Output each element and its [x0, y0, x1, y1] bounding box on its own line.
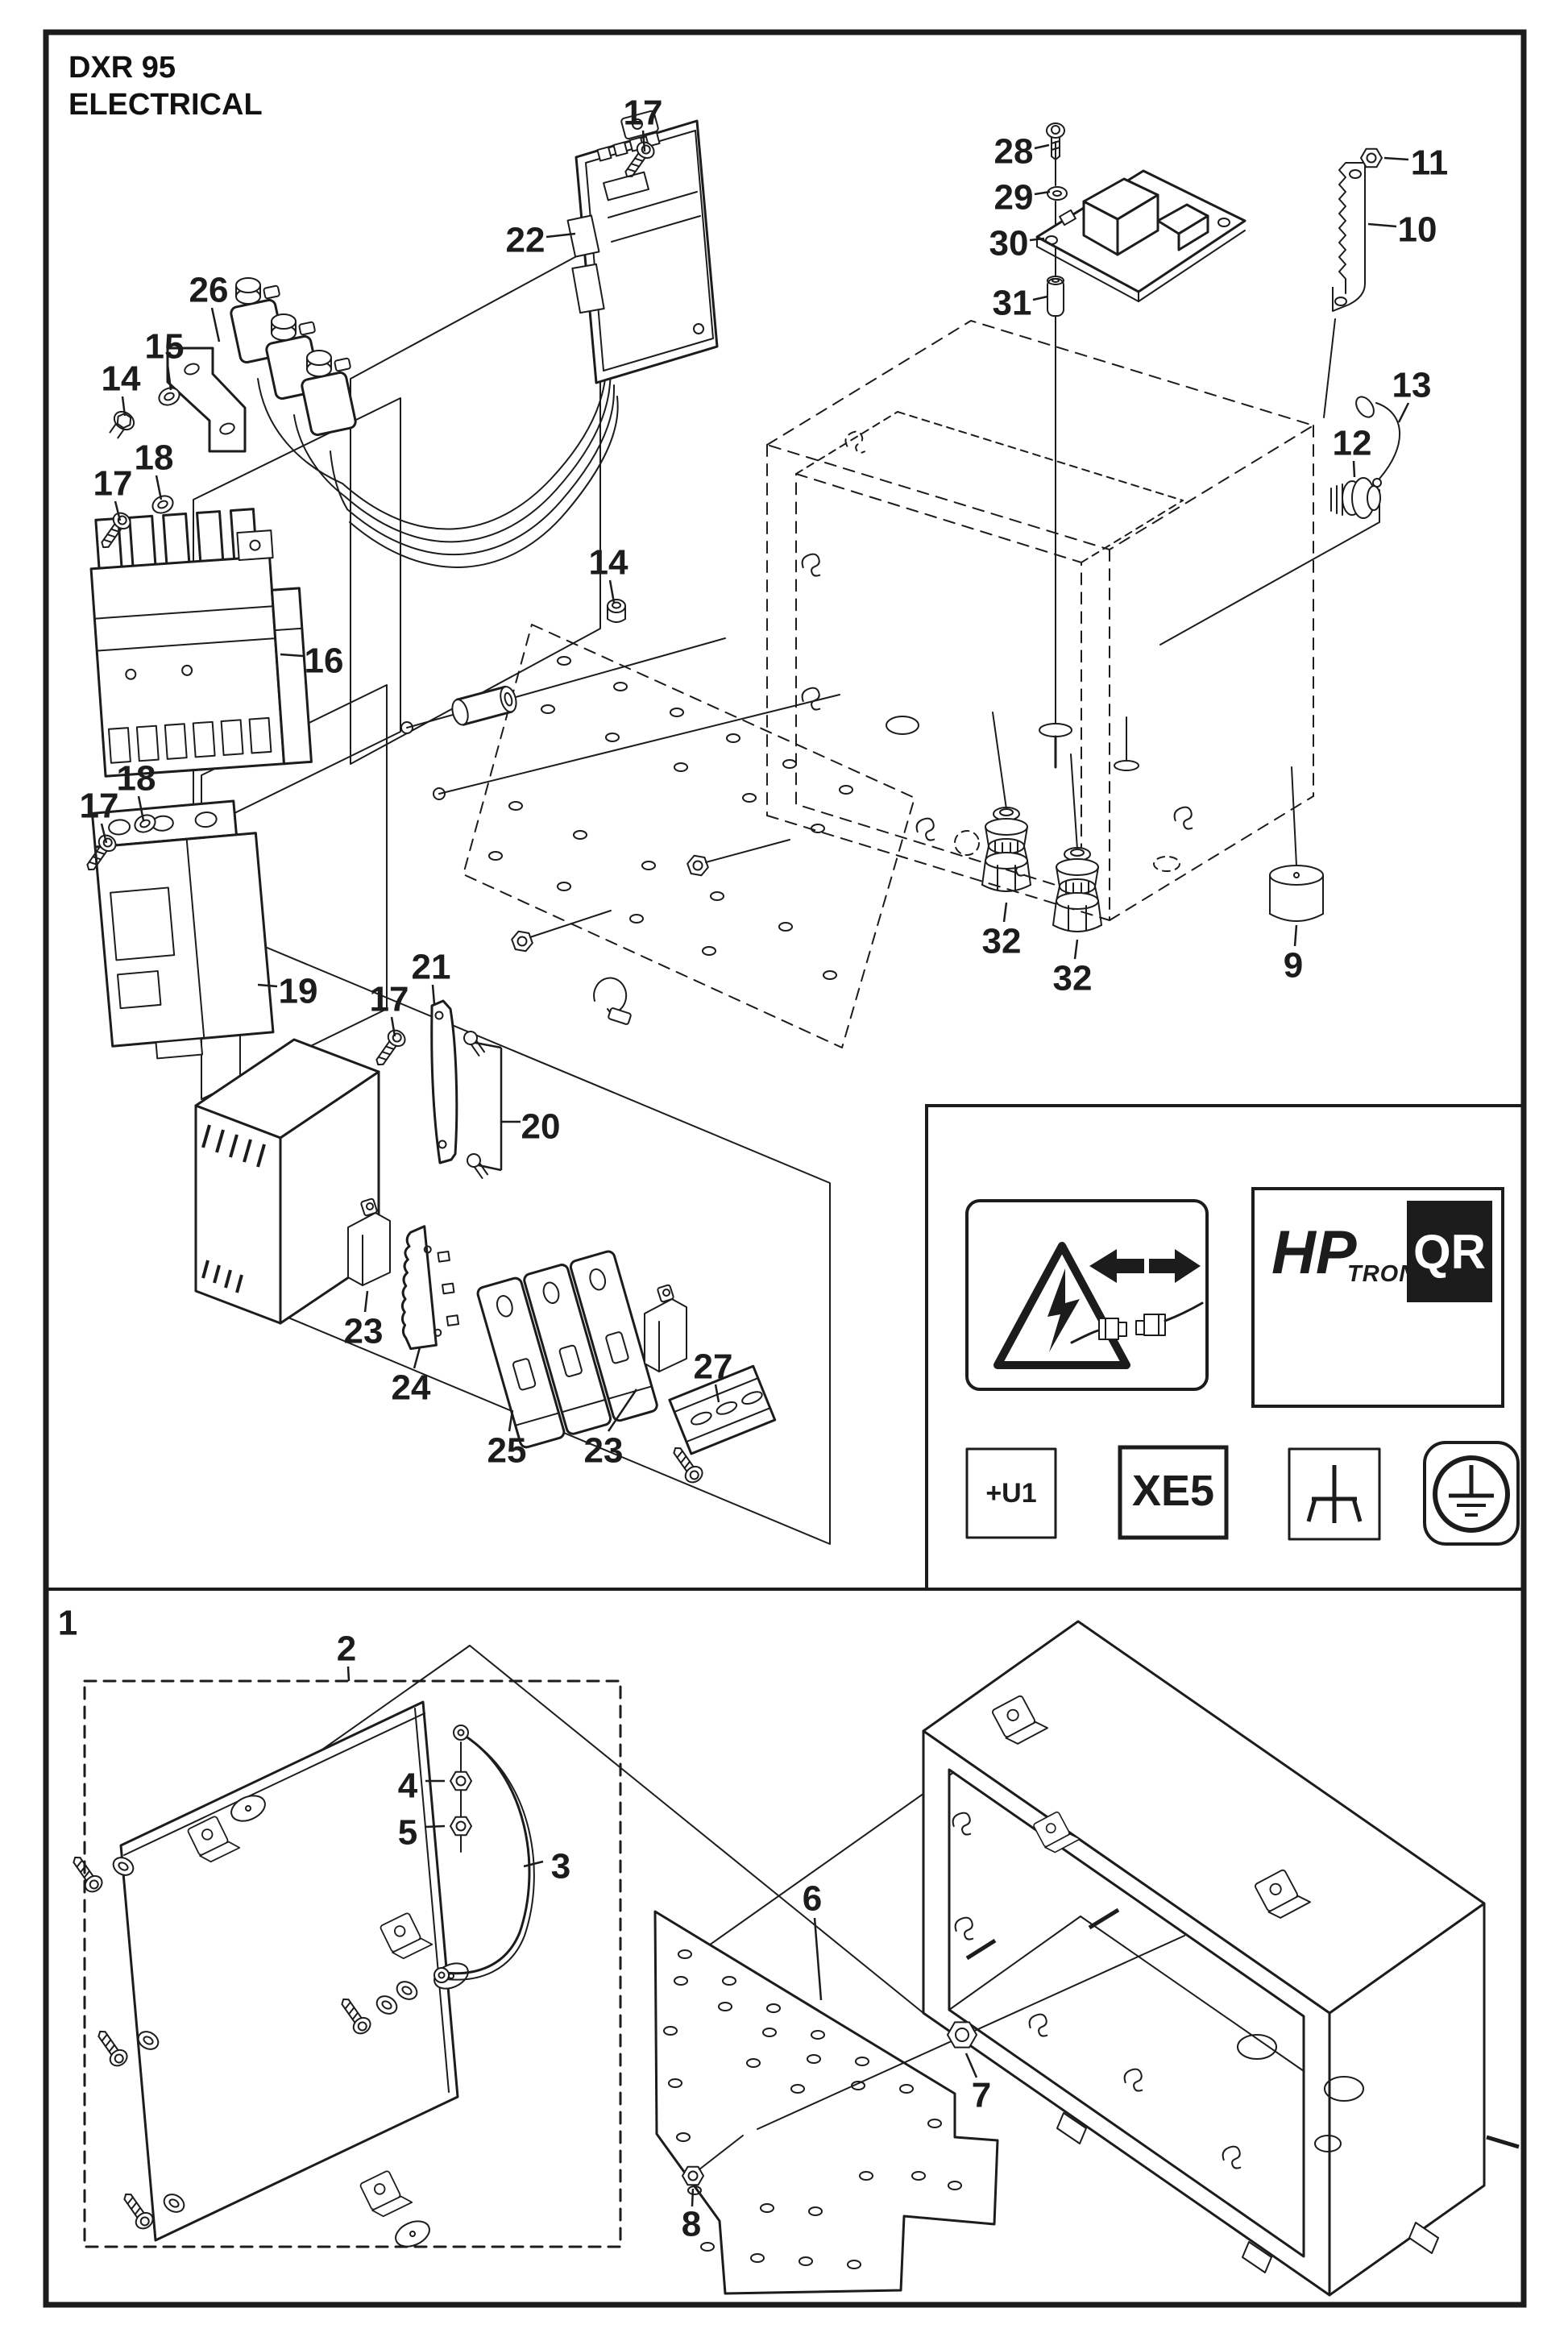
callout-leader-28 [1035, 145, 1049, 148]
page-title-model: DXR 95 [68, 51, 176, 85]
part-label-32-29: 32 [1053, 959, 1093, 998]
callout-leader-32 [1004, 903, 1006, 922]
contactor [88, 506, 312, 776]
part-label-23-26: 23 [584, 1431, 624, 1471]
part-label-20-22: 20 [521, 1107, 561, 1147]
strap-21 [432, 1001, 457, 1163]
cable-clip [594, 978, 631, 1025]
callout-leader-13 [1399, 403, 1408, 422]
qr-badge-text: QR [1413, 1225, 1486, 1279]
part-label-21-21: 21 [412, 948, 451, 987]
coil-assembly [230, 278, 356, 436]
part-label-18-15: 18 [135, 438, 174, 478]
part-label-4-33: 4 [398, 1766, 418, 1806]
part-label-9-30: 9 [1284, 946, 1303, 986]
callout-leader-21 [433, 985, 434, 1004]
part-label-27-27: 27 [694, 1347, 733, 1387]
lower-section [68, 1621, 1519, 2295]
part-label-18-19: 18 [117, 759, 156, 799]
part-label-29-6: 29 [994, 178, 1034, 218]
part-label-19-17: 19 [279, 972, 318, 1011]
arrow-right-icon [1149, 1249, 1201, 1283]
callout-leader-2 [348, 1667, 349, 1681]
end-stop-23b [645, 1285, 687, 1372]
part-label-22-1: 22 [506, 221, 545, 260]
callout-leader-5 [425, 1826, 445, 1827]
part-label-32-28: 32 [982, 922, 1022, 961]
part-label-28-5: 28 [994, 132, 1034, 172]
earth-cable-assembly [434, 1725, 534, 1982]
relay-board [1037, 171, 1245, 301]
cable-gland-32b [1053, 848, 1101, 932]
page-title-section: ELECTRICAL [68, 88, 263, 122]
part-label-15-3: 15 [145, 327, 185, 367]
screw-20b [465, 1152, 490, 1180]
terminal-block-24 [389, 1223, 461, 1349]
plate-hardware [401, 600, 840, 1025]
part-label-24-24: 24 [392, 1368, 431, 1408]
tag-xe5-text: XE5 [1132, 1467, 1214, 1515]
parts-diagram-svg: DXR 95 ELECTRICAL [0, 0, 1568, 2337]
callout-leader-14 [610, 580, 614, 603]
tag-u1: +U1 [967, 1449, 1056, 1538]
part-label-6-36: 6 [803, 1879, 822, 1919]
part-label-17-20: 17 [370, 980, 409, 1019]
part-label-5-34: 5 [398, 1813, 417, 1853]
legend-panel: HP TRONIC QR +U1 XE5 [967, 1189, 1518, 1544]
damper-9 [1270, 865, 1323, 921]
part-label-1-31: 1 [58, 1604, 77, 1643]
washer-29 [1047, 187, 1067, 200]
screw-17d [371, 1027, 408, 1070]
callout-leader-11 [1384, 158, 1408, 160]
bolt-14b [608, 600, 625, 622]
callout-leader-26 [212, 308, 219, 342]
bolt-14a [106, 408, 138, 441]
cable-connector-icon [1072, 1303, 1202, 1343]
callout-leader-32 [1075, 940, 1077, 959]
upper-section [81, 110, 1400, 1544]
part-label-30-7: 30 [989, 224, 1029, 264]
part-label-23-23: 23 [344, 1312, 384, 1351]
part-label-26-2: 26 [189, 271, 229, 310]
parts-diagram-page: DXR 95 ELECTRICAL [0, 0, 1568, 2337]
callout-leader-18 [156, 475, 161, 500]
coil-mount-sheet [351, 243, 600, 764]
callout-leader-12 [1354, 461, 1354, 477]
part-label-31-8: 31 [993, 284, 1032, 323]
electrical-enclosure [923, 1621, 1519, 2295]
ghost-enclosure [767, 321, 1313, 920]
tag-xe5: XE5 [1120, 1447, 1226, 1538]
arrow-left-icon [1089, 1249, 1144, 1283]
washer-18b [150, 493, 176, 517]
chassis-ground-icon [1309, 1465, 1360, 1523]
part-label-14-16: 14 [589, 543, 628, 583]
tag-u1-text: +U1 [985, 1478, 1036, 1509]
part-label-8-38: 8 [682, 2205, 701, 2244]
callout-leader-31 [1033, 297, 1047, 300]
callout-leader-24 [414, 1347, 420, 1368]
part-label-13-11: 13 [1392, 366, 1432, 405]
callout-leader-10 [1368, 224, 1396, 226]
callout-leader-9 [1295, 925, 1296, 946]
hp-logo-text: HP [1271, 1218, 1357, 1287]
protective-earth-symbol [1425, 1442, 1518, 1544]
connector-warning-label [967, 1201, 1207, 1389]
protective-earth-icon [1435, 1458, 1508, 1530]
part-label-17-18: 17 [80, 787, 119, 826]
part-label-7-37: 7 [972, 2076, 991, 2115]
part-label-11-9: 11 [1411, 143, 1449, 183]
part-label-17-14: 17 [93, 464, 133, 504]
cable-gland-32a [982, 807, 1031, 891]
part-label-17-0: 17 [624, 93, 663, 133]
serrated-bracket-10 [1333, 163, 1365, 311]
part-label-10-10: 10 [1398, 210, 1437, 250]
power-supply-transformer [196, 1040, 379, 1323]
part-label-25-25: 25 [487, 1431, 527, 1471]
perforated-mount-plate [463, 625, 915, 1048]
spacer-31 [1047, 276, 1064, 316]
part-label-3-35: 3 [551, 1847, 570, 1887]
circuit-breaker-25 [476, 1250, 658, 1449]
soft-starter [92, 799, 274, 1062]
part-label-2-32: 2 [337, 1629, 356, 1669]
chassis-ground-symbol [1289, 1449, 1379, 1539]
part-label-12-12: 12 [1333, 424, 1372, 463]
callout-leader-7 [966, 2053, 977, 2078]
nut-11 [1361, 149, 1382, 168]
callout-leader-23 [365, 1291, 367, 1312]
part-label-16-13: 16 [305, 641, 344, 681]
part-label-14-4: 14 [102, 359, 141, 399]
hp-tronic-badge: HP TRONIC QR [1253, 1189, 1503, 1406]
